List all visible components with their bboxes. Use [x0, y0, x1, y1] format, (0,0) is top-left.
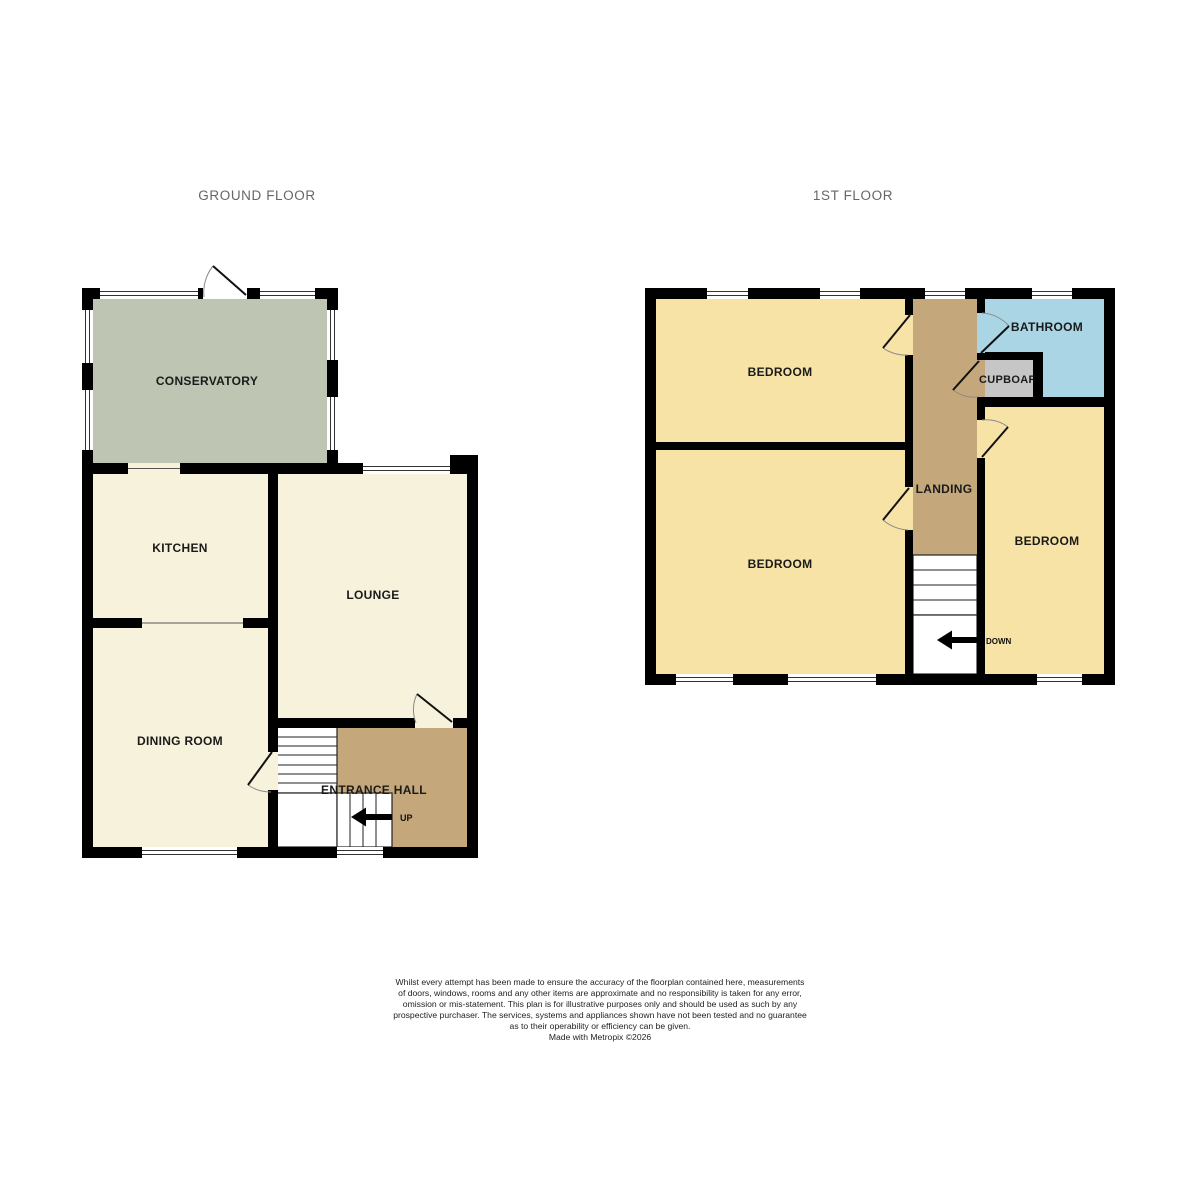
disclaimer-text: Whilst every attempt has been made to en… — [390, 977, 810, 1043]
stairs-down — [913, 555, 977, 674]
room-label-dining-room: DINING ROOM — [137, 734, 223, 748]
window — [820, 288, 860, 299]
window — [142, 847, 237, 858]
window — [1032, 288, 1072, 299]
window — [82, 390, 93, 450]
window — [260, 288, 315, 299]
window — [788, 674, 876, 685]
room-landing — [913, 299, 977, 555]
door-conservatory — [203, 266, 247, 299]
ground-floor-plan: CONSERVATORY KITCHEN LOUNGE DINING ROOM … — [70, 255, 490, 870]
first-floor-plan: BEDROOM BATHROOM CUPBOARD LANDING BEDROO… — [630, 255, 1130, 700]
room-label-bedroom-side: BEDROOM — [1015, 534, 1080, 548]
room-label-bathroom: BATHROOM — [1011, 320, 1083, 334]
room-label-landing: LANDING — [916, 482, 973, 496]
room-label-kitchen: KITCHEN — [152, 541, 207, 555]
window — [363, 463, 450, 474]
room-label-entrance-hall: ENTRANCE HALL — [321, 783, 427, 797]
window — [676, 674, 733, 685]
window — [925, 288, 965, 299]
room-label-bedroom-back: BEDROOM — [748, 557, 813, 571]
window — [327, 397, 338, 450]
stairs-down-label: DOWN — [986, 637, 1012, 646]
window — [1037, 674, 1082, 685]
window — [337, 847, 383, 858]
room-label-bedroom-front: BEDROOM — [748, 365, 813, 379]
room-label-lounge: LOUNGE — [346, 588, 399, 602]
room-label-conservatory: CONSERVATORY — [156, 374, 258, 388]
opening — [128, 463, 180, 474]
window — [327, 310, 338, 360]
stairs-up-label: UP — [400, 813, 413, 823]
opening — [142, 618, 243, 628]
window — [82, 310, 93, 363]
first-floor-title: 1ST FLOOR — [703, 188, 1003, 203]
window — [707, 288, 748, 299]
window — [100, 288, 198, 299]
ground-floor-title: GROUND FLOOR — [107, 188, 407, 203]
